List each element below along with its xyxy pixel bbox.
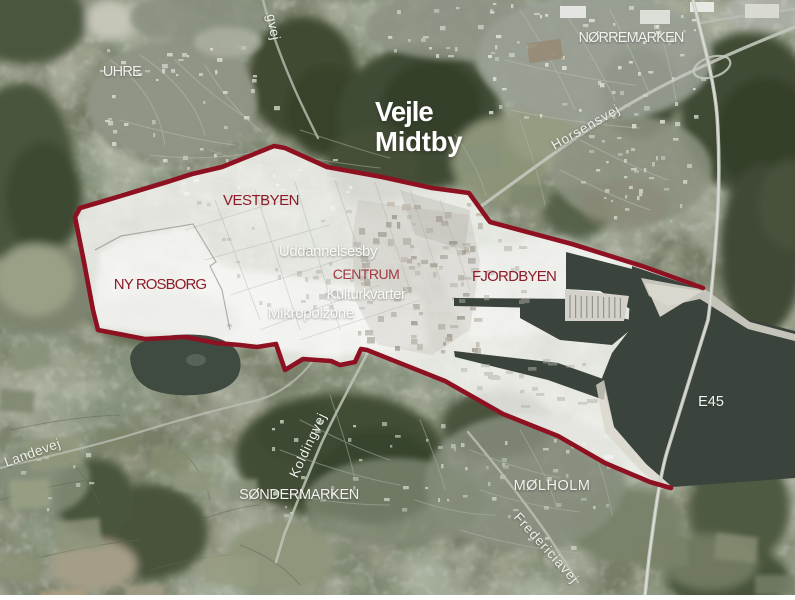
svg-text:UHRE: UHRE — [103, 64, 142, 80]
svg-text:NY ROSBORG: NY ROSBORG — [114, 276, 207, 293]
svg-text:VESTBYEN: VESTBYEN — [223, 192, 299, 209]
svg-text:CENTRUM: CENTRUM — [333, 266, 400, 282]
svg-text:Kulturkvarter: Kulturkvarter — [326, 286, 406, 303]
svg-text:SØNDERMARKEN: SØNDERMARKEN — [239, 487, 359, 503]
svg-text:Vejle: Vejle — [375, 96, 433, 127]
svg-text:Uddannelsesby: Uddannelsesby — [279, 243, 378, 260]
svg-text:FJORDBYEN: FJORDBYEN — [472, 268, 556, 285]
svg-text:NØRREMARKEN: NØRREMARKEN — [578, 30, 683, 46]
svg-text:MØLHOLM: MØLHOLM — [514, 478, 591, 494]
svg-text:Mikropolzone: Mikropolzone — [268, 305, 354, 322]
svg-text:E45: E45 — [698, 394, 724, 410]
svg-text:Midtby: Midtby — [375, 126, 463, 157]
